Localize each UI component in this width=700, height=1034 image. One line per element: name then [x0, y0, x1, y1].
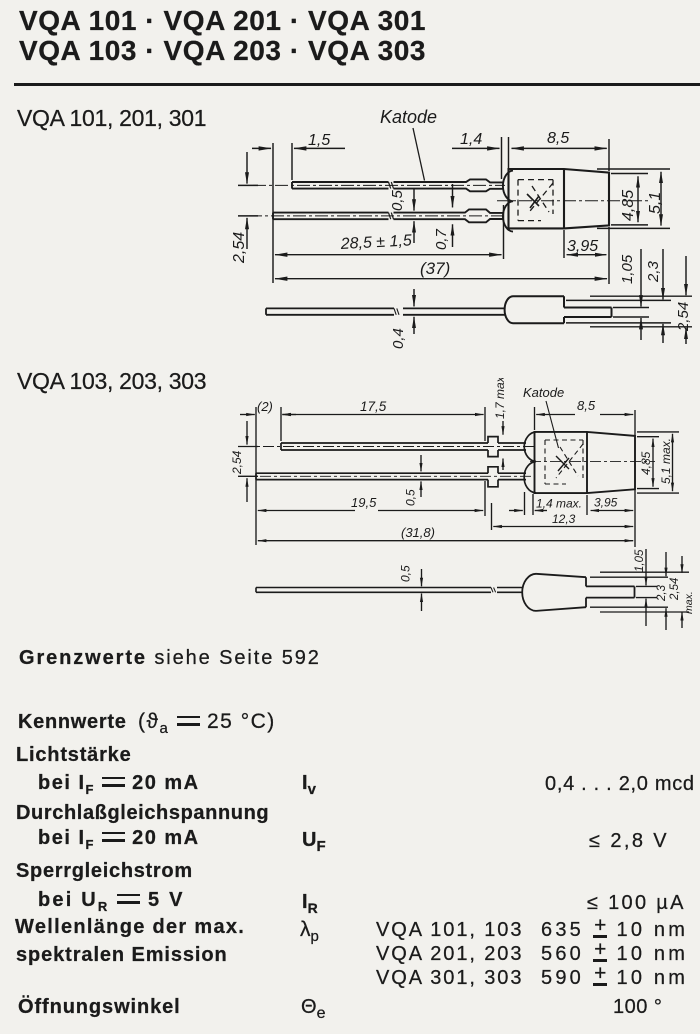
- svg-text:5,1: 5,1: [647, 192, 664, 214]
- svg-text:2,3: 2,3: [645, 260, 662, 283]
- svg-text:4,85: 4,85: [639, 451, 653, 475]
- svg-text:8,5: 8,5: [547, 130, 569, 147]
- svg-text:0,7: 0,7: [433, 228, 450, 250]
- svg-text:12,3: 12,3: [552, 512, 576, 526]
- svg-text:1,5: 1,5: [308, 132, 330, 149]
- svg-text:2,54: 2,54: [231, 232, 248, 264]
- svg-text:0,5: 0,5: [389, 189, 406, 211]
- svg-text:1,05: 1,05: [634, 549, 646, 572]
- svg-text:0,5: 0,5: [399, 565, 413, 582]
- svg-text:5,1 max.: 5,1 max.: [659, 438, 673, 484]
- svg-text:2,3: 2,3: [656, 584, 668, 602]
- svg-text:17,5: 17,5: [360, 399, 387, 414]
- svg-text:1,4 max.: 1,4 max.: [536, 497, 582, 511]
- svg-text:1,4: 1,4: [460, 131, 482, 148]
- svg-text:(37): (37): [420, 259, 450, 278]
- svg-text:(2): (2): [257, 399, 273, 414]
- svg-text:2,54: 2,54: [675, 302, 692, 332]
- svg-text:8,5: 8,5: [577, 398, 596, 413]
- svg-text:1,05: 1,05: [619, 254, 636, 284]
- svg-text:Katode: Katode: [523, 385, 564, 400]
- svg-text:19,5: 19,5: [351, 495, 377, 510]
- svg-text:3,95: 3,95: [567, 238, 598, 255]
- svg-text:Katode: Katode: [380, 107, 437, 127]
- svg-text:1,7 max.: 1,7 max.: [493, 378, 507, 419]
- svg-text:3,95: 3,95: [594, 496, 618, 510]
- svg-text:0,4: 0,4: [390, 328, 407, 349]
- svg-text:max.: max.: [683, 591, 695, 614]
- svg-text:2,54: 2,54: [230, 450, 244, 475]
- svg-text:(31,8): (31,8): [401, 525, 435, 540]
- svg-text:4,85: 4,85: [620, 190, 637, 221]
- svg-text:28,5 ± 1,5: 28,5 ± 1,5: [339, 232, 412, 253]
- svg-text:0,5: 0,5: [404, 489, 418, 506]
- svg-text:2,54: 2,54: [669, 578, 681, 601]
